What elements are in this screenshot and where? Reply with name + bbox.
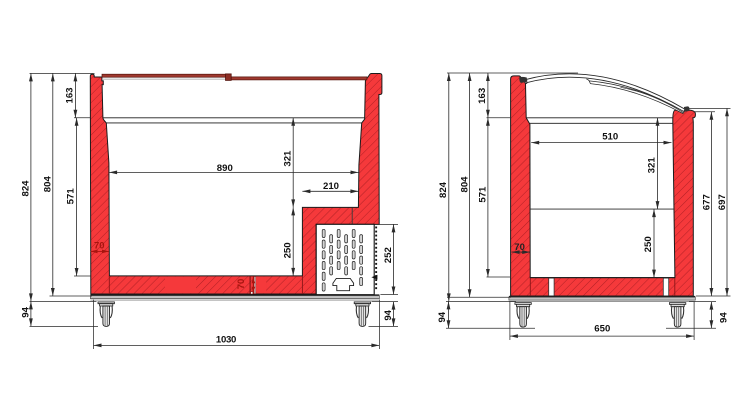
svg-text:824: 824 (21, 180, 32, 197)
svg-text:321: 321 (646, 157, 657, 174)
svg-text:250: 250 (643, 236, 654, 252)
svg-text:1030: 1030 (216, 335, 236, 346)
svg-text:677: 677 (702, 194, 713, 210)
svg-text:163: 163 (477, 88, 488, 104)
svg-text:70: 70 (514, 242, 525, 253)
svg-text:210: 210 (323, 181, 339, 192)
svg-text:890: 890 (217, 163, 233, 174)
svg-text:94: 94 (383, 309, 394, 320)
svg-text:571: 571 (478, 186, 489, 203)
svg-text:321: 321 (283, 150, 294, 167)
svg-text:94: 94 (718, 312, 729, 323)
svg-text:252: 252 (383, 247, 394, 263)
svg-text:250: 250 (283, 242, 294, 258)
svg-text:70: 70 (94, 240, 105, 251)
svg-text:824: 824 (438, 181, 449, 198)
svg-text:650: 650 (594, 324, 610, 335)
svg-text:510: 510 (602, 132, 618, 143)
svg-text:571: 571 (66, 188, 77, 205)
svg-text:94: 94 (21, 306, 32, 317)
svg-text:94: 94 (437, 311, 448, 322)
svg-text:804: 804 (42, 176, 53, 193)
svg-text:70: 70 (236, 279, 247, 290)
svg-text:697: 697 (717, 194, 728, 210)
svg-text:163: 163 (65, 87, 76, 103)
svg-text:804: 804 (459, 176, 470, 193)
